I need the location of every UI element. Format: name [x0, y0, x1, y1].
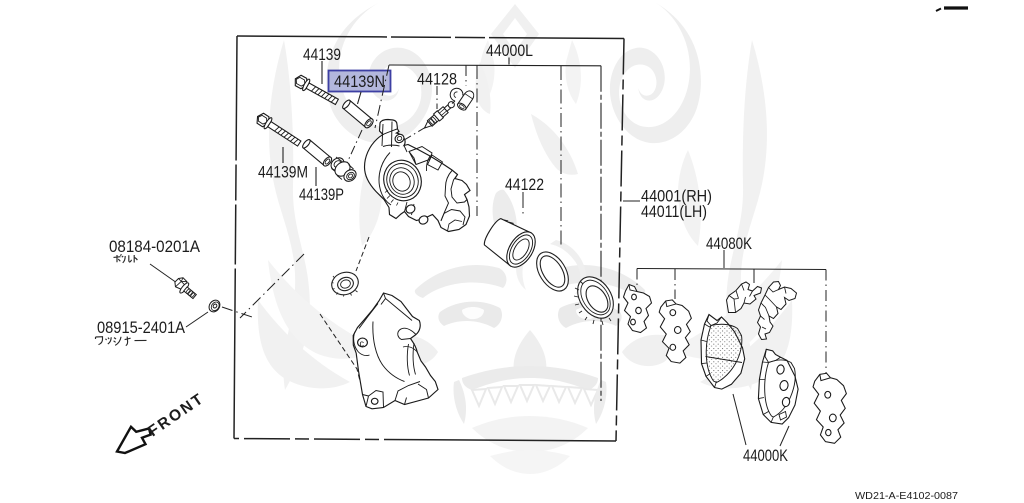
- svg-text:FRONT: FRONT: [145, 390, 208, 440]
- svg-text:44139: 44139: [303, 46, 341, 64]
- svg-text:44139M: 44139M: [258, 164, 308, 182]
- svg-text:44080K: 44080K: [706, 235, 752, 253]
- svg-text:44000K: 44000K: [743, 447, 788, 465]
- svg-text:44128: 44128: [417, 71, 457, 89]
- svg-text:WD21-A-E4102-0087: WD21-A-E4102-0087: [855, 490, 958, 502]
- svg-text:08184-0201A: 08184-0201A: [109, 238, 200, 256]
- svg-text:c: c: [360, 339, 365, 349]
- svg-text:44122: 44122: [505, 176, 544, 194]
- svg-text:44000L: 44000L: [486, 42, 533, 60]
- svg-text:08915-2401A: 08915-2401A: [97, 319, 185, 337]
- svg-text:44139P: 44139P: [299, 186, 344, 204]
- svg-text:44011(LH): 44011(LH): [641, 203, 707, 221]
- svg-text:44139N: 44139N: [334, 73, 385, 91]
